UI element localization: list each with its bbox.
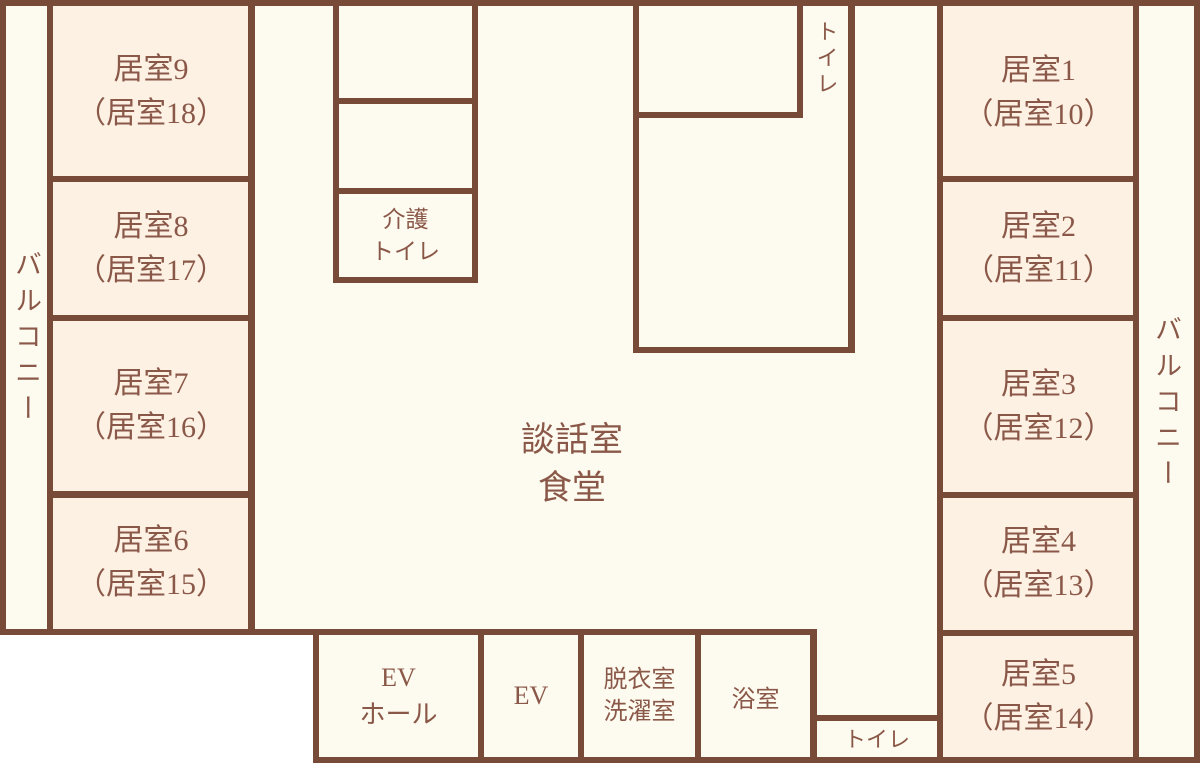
room-kyoshitsu-1: 居室1 （居室10） [943,6,1134,179]
lounge-label-line2: 食堂 [538,465,606,513]
room-name: 居室2 [1001,205,1076,249]
room-kyoshitsu-8: 居室8 （居室17） [53,180,249,318]
wall [472,0,478,283]
wall [47,176,255,182]
room-alt-name: （居室16） [76,406,226,450]
ev-hall-line2: ホール [359,696,437,733]
room-name: 居室6 [114,519,189,563]
room-kyoshitsu-6: 居室6 （居室15） [53,494,249,632]
room-name: 居室1 [1001,49,1076,93]
care-toilet-label: 介護 トイレ [339,194,472,277]
wall [333,277,478,283]
care-toilet-line2: トイレ [371,236,440,268]
balcony-left-label: バルコニー [6,235,47,445]
wall [937,0,943,763]
ev-label: EV [484,635,578,757]
room-alt-name: （居室10） [964,93,1114,137]
wall [633,0,639,353]
wall [633,347,855,353]
room-kyoshitsu-3: 居室3 （居室12） [943,318,1134,495]
wall [47,491,255,498]
room-alt-name: （居室17） [76,249,226,293]
room-name: 居室3 [1001,363,1076,407]
wall [937,492,1139,498]
dressing-laundry-label: 脱衣室 洗濯室 [584,635,695,757]
wall [1194,0,1200,763]
wall [937,630,1139,636]
room-kyoshitsu-7: 居室7 （居室16） [53,318,249,494]
care-toilet-line1: 介護 [383,204,429,236]
room-alt-name: （居室13） [964,564,1114,608]
wall [848,0,855,353]
room-name: 居室4 [1001,520,1076,564]
room-kyoshitsu-2: 居室2 （居室11） [943,179,1134,318]
dressing-line2: 洗濯室 [604,696,676,728]
lounge-dining-label: 談話室 食堂 [452,415,692,515]
room-name: 居室5 [1001,653,1076,697]
dressing-line1: 脱衣室 [604,664,676,696]
room-kyoshitsu-4: 居室4 （居室13） [943,495,1134,633]
wall [313,757,1200,763]
room-name: 居室7 [114,362,189,406]
room-alt-name: （居室12） [964,407,1114,451]
balcony-right-label: バルコニー [1139,300,1194,510]
room-alt-name: （居室11） [964,249,1113,293]
room-name: 居室8 [114,205,189,249]
room-alt-name: （居室18） [76,92,226,136]
bath-label: 浴室 [701,635,810,757]
floor-plan: 居室9 （居室18） 居室8 （居室17） 居室7 （居室16） 居室6 （居室… [0,0,1200,768]
wall [0,0,1200,6]
ev-hall-line1: EV [381,659,416,696]
room-name: 居室9 [114,48,189,92]
room-kyoshitsu-9: 居室9 （居室18） [53,6,249,177]
room-kyoshitsu-5: 居室5 （居室14） [943,633,1134,760]
wall [333,98,478,104]
wall [937,315,1139,321]
toilet-bottom-label: トイレ [817,719,937,757]
wall [47,315,255,321]
room-alt-name: （居室15） [76,563,226,607]
lounge-label-line1: 談話室 [521,417,623,465]
wall [633,112,803,118]
wall [810,629,817,763]
ev-hall-label: EV ホール [319,635,478,757]
toilet-top-label: トイレ [803,6,848,112]
wall [937,176,1139,182]
room-alt-name: （居室14） [964,697,1114,741]
